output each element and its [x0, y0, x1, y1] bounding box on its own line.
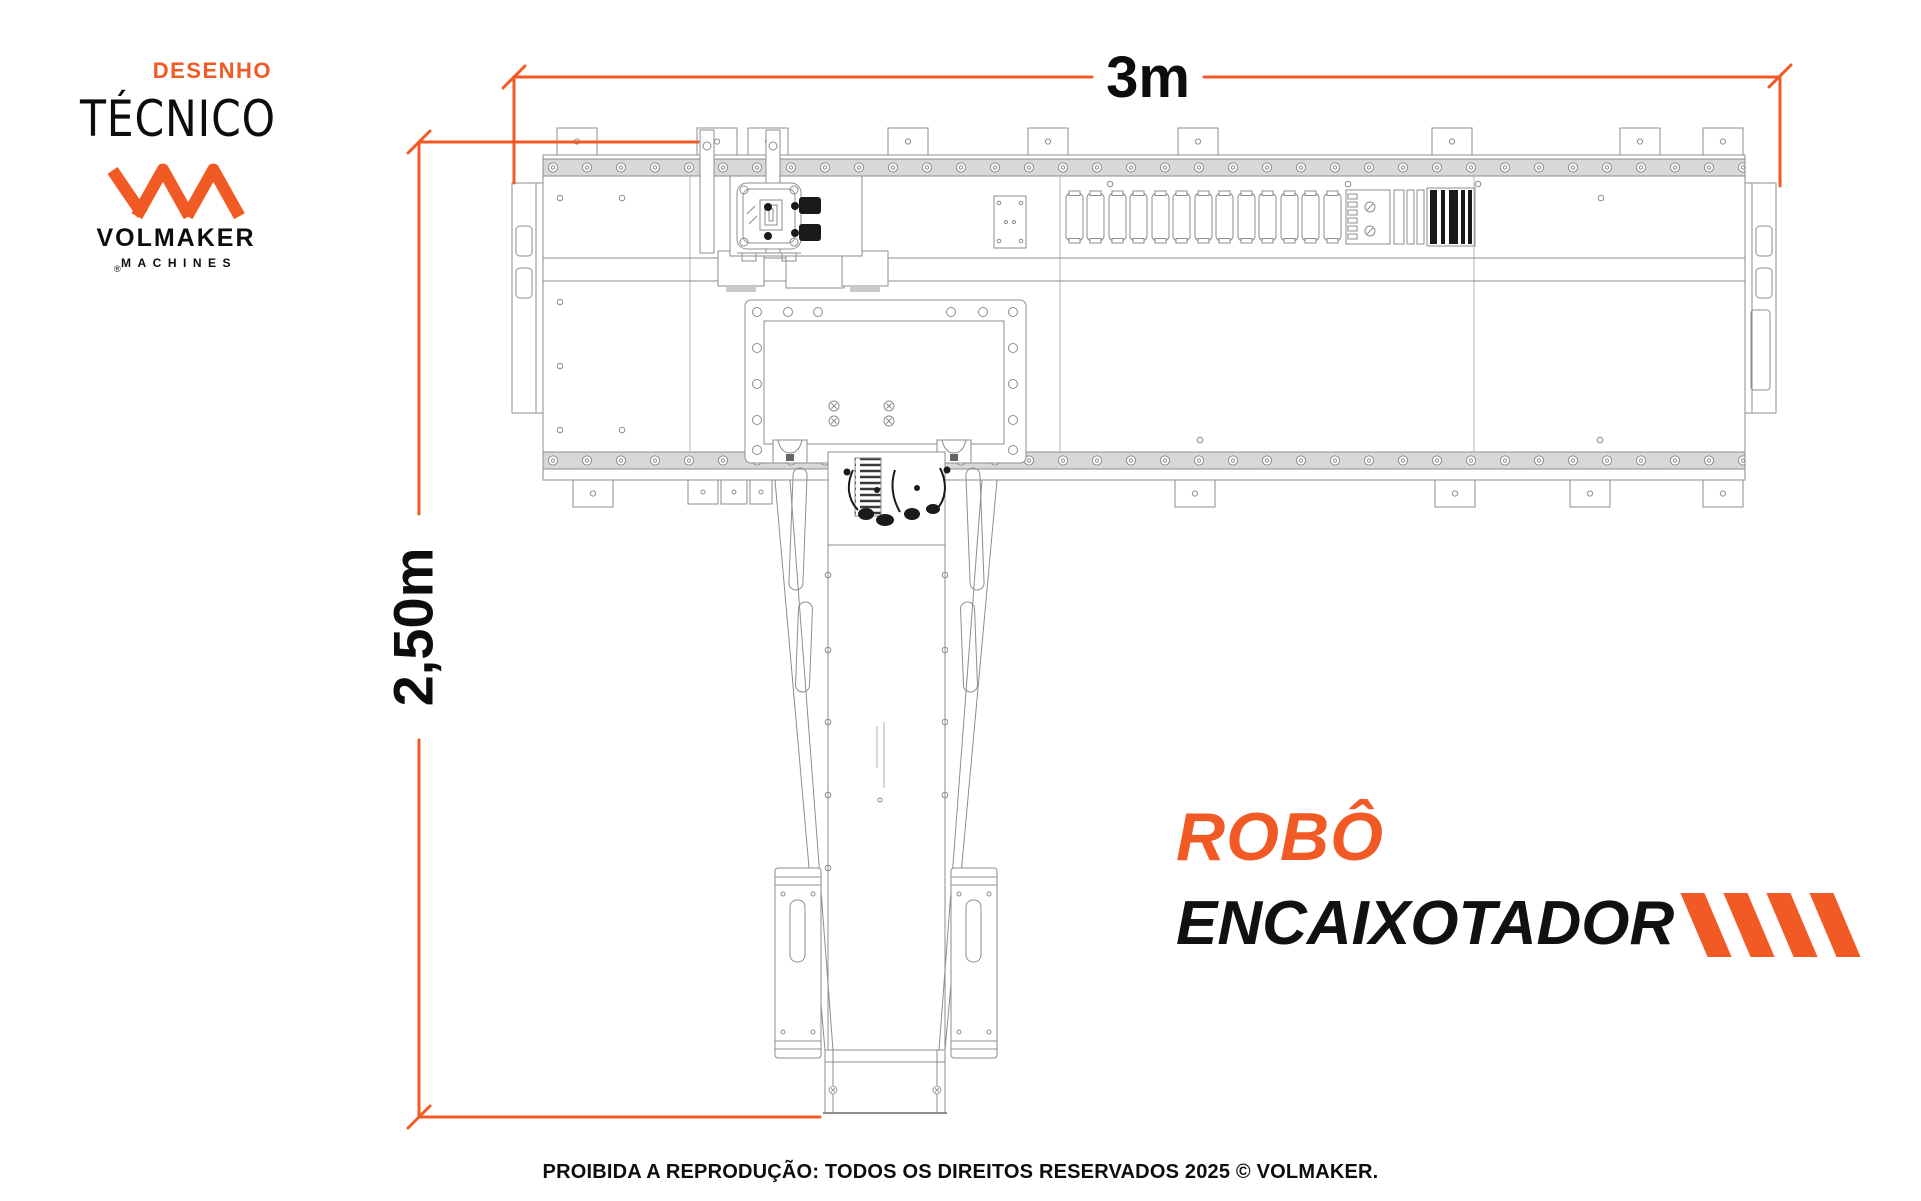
gear-rack [855, 458, 881, 516]
product-name-line1: ROBÔ [1176, 804, 1847, 871]
stripe [1767, 893, 1818, 957]
technical-drawing-page: DESENHO TÉCNICO ® VOLMAKER MACHINES 3m 2… [0, 0, 1921, 1201]
copyright-notice: PROIBIDA A REPRODUÇÃO: TODOS OS DIREITOS… [0, 1161, 1921, 1184]
right-foot-bracket [951, 868, 997, 1058]
vertical-column [775, 452, 997, 1113]
diagonal-stripes-icon [1694, 893, 1847, 957]
bottom-mounting-tabs [573, 480, 1743, 507]
top-mounting-tabs [557, 128, 1743, 155]
brand-block: DESENHO TÉCNICO ® VOLMAKER MACHINES [80, 58, 272, 270]
brand-title: TÉCNICO [80, 92, 243, 147]
registered-trademark: ® [114, 264, 121, 274]
carriage-base-plate [745, 300, 1026, 463]
left-end-cap [512, 183, 543, 413]
volmaker-wordmark: VOLMAKER [80, 224, 272, 253]
width-dimension-label: 3m [1092, 44, 1204, 111]
machine-cad-drawing [0, 0, 1921, 1201]
column-foot [823, 1050, 947, 1113]
brand-subtitle: DESENHO [80, 58, 272, 84]
gantry-machine-top-view [512, 128, 1776, 1113]
stripe [1724, 893, 1775, 957]
product-title-block: ROBÔ ENCAIXOTADOR [1176, 804, 1847, 957]
stripe [1681, 893, 1732, 957]
volmaker-logo-icon [88, 163, 264, 219]
height-dimension-label: 2,50m [381, 548, 446, 707]
right-end-cap [1745, 183, 1776, 413]
product-name-line2: ENCAIXOTADOR [1176, 893, 1674, 955]
left-foot-bracket [775, 868, 821, 1058]
volmaker-machines-label: MACHINES [80, 256, 272, 270]
